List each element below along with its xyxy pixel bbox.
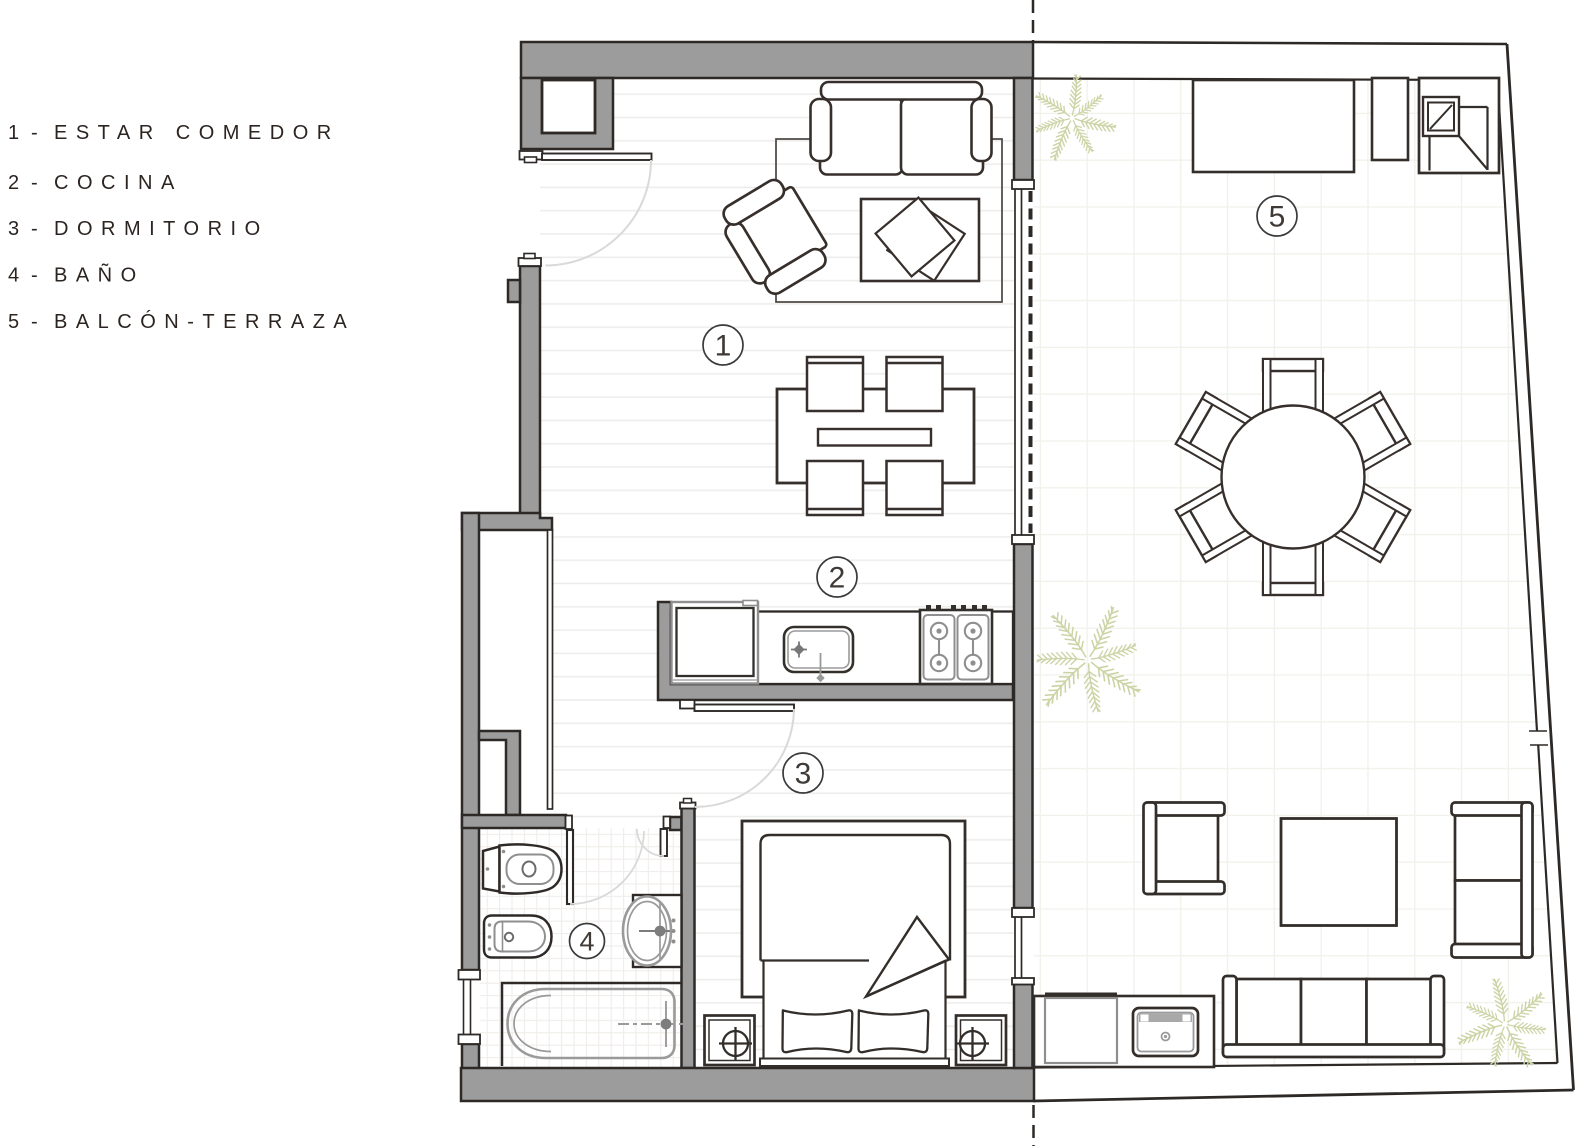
svg-text:4: 4	[8, 265, 19, 287]
svg-text:BALCÓN-TERRAZA: BALCÓN-TERRAZA	[54, 310, 355, 333]
svg-text:DORMITORIO: DORMITORIO	[54, 218, 269, 240]
svg-text:-: -	[31, 265, 38, 287]
svg-text:-: -	[31, 218, 38, 240]
svg-text:3: 3	[795, 758, 812, 791]
svg-text:3: 3	[8, 218, 19, 240]
svg-text:-: -	[31, 122, 38, 144]
svg-text:BAÑO: BAÑO	[54, 263, 145, 287]
svg-text:-: -	[31, 172, 38, 194]
svg-text:4: 4	[579, 927, 594, 957]
svg-text:ESTAR COMEDOR: ESTAR COMEDOR	[54, 122, 340, 144]
svg-text:-: -	[31, 311, 38, 333]
svg-text:1: 1	[8, 122, 19, 144]
svg-text:COCINA: COCINA	[54, 172, 183, 194]
svg-text:1: 1	[715, 330, 732, 363]
svg-text:2: 2	[829, 562, 846, 595]
svg-text:2: 2	[8, 172, 19, 194]
svg-text:5: 5	[1269, 201, 1286, 234]
svg-text:5: 5	[8, 311, 19, 333]
